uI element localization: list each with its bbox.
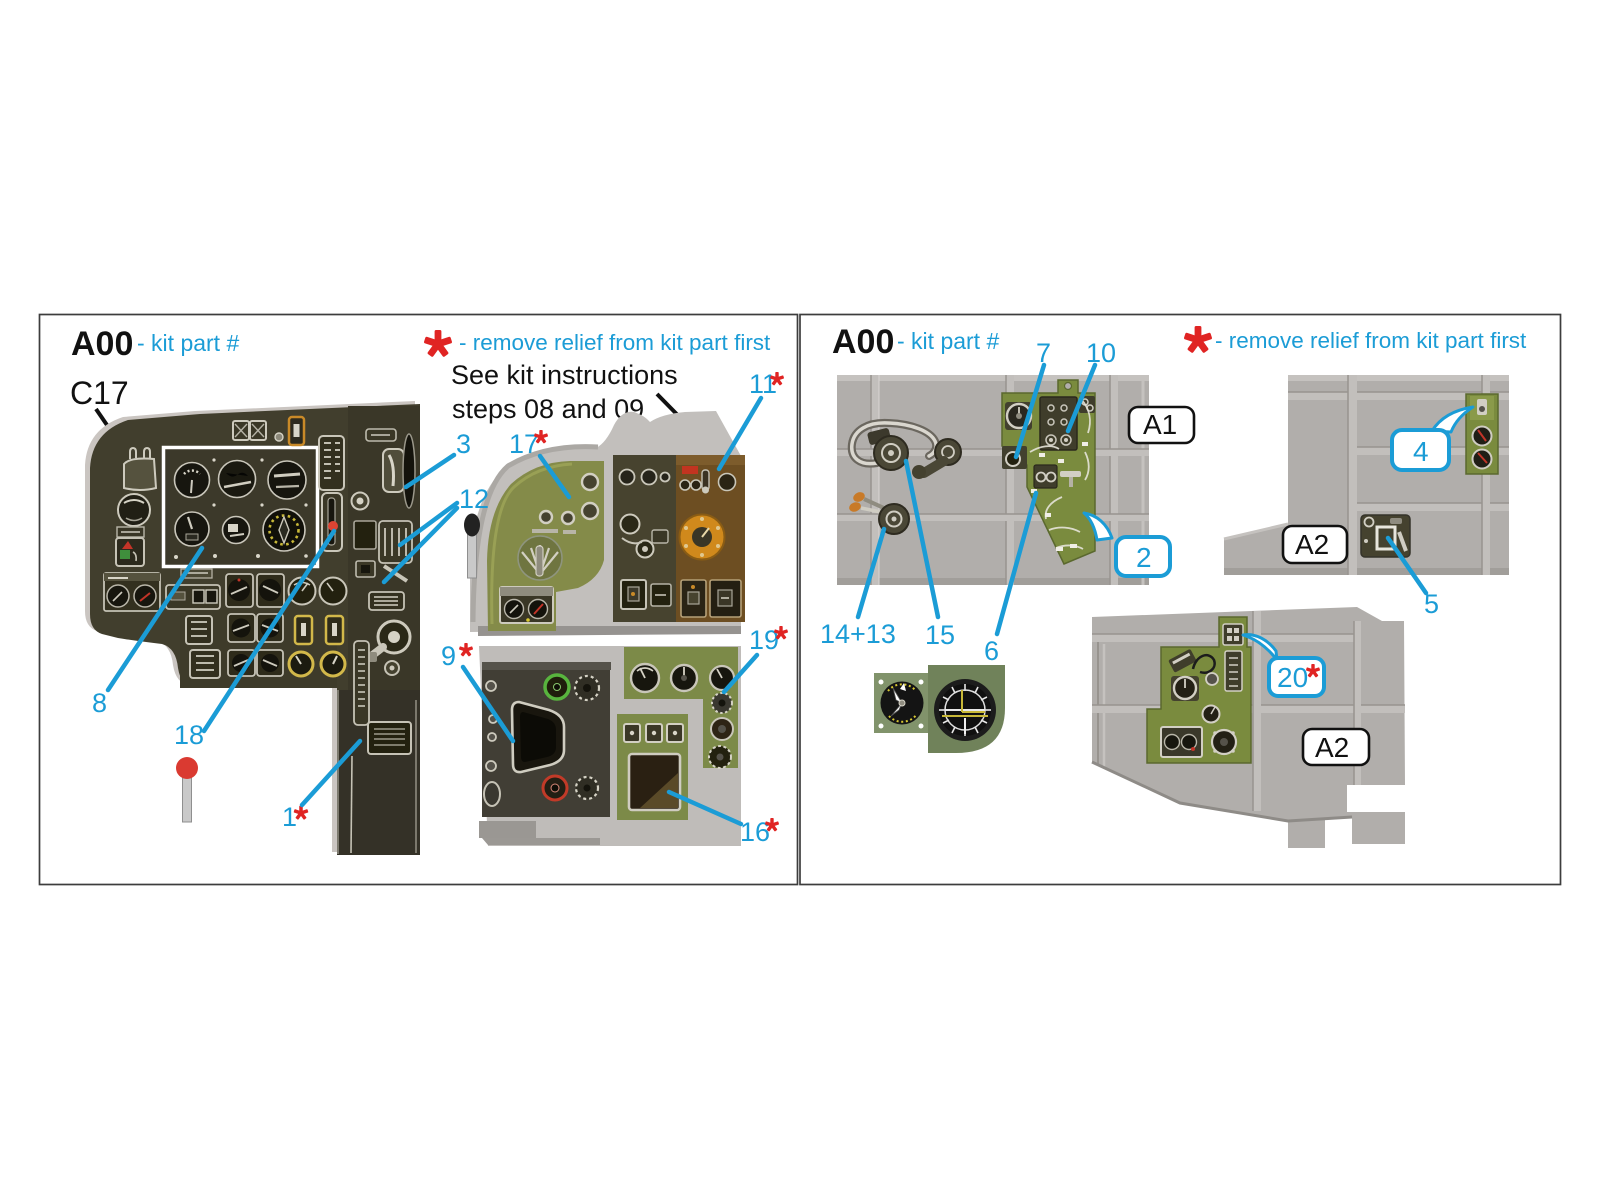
svg-text:14+13: 14+13 [820, 619, 896, 649]
svg-text:6: 6 [984, 636, 999, 666]
svg-text:A2: A2 [1315, 732, 1349, 763]
svg-text:A00: A00 [832, 323, 894, 361]
svg-text:- remove relief from kit part: - remove relief from kit part first [459, 330, 771, 355]
svg-text:steps 08 and 09: steps 08 and 09 [452, 394, 644, 424]
svg-text:8: 8 [92, 688, 107, 718]
svg-text:4: 4 [1413, 436, 1429, 467]
svg-text:A00: A00 [71, 325, 133, 363]
svg-text:12: 12 [459, 484, 489, 514]
svg-text:18: 18 [174, 720, 204, 750]
svg-text:See kit instructions: See kit instructions [451, 360, 678, 390]
svg-text:20: 20 [1277, 662, 1308, 693]
svg-text:3: 3 [456, 429, 471, 459]
svg-text:C17: C17 [70, 375, 129, 411]
svg-text:17: 17 [509, 429, 539, 459]
svg-text:15: 15 [925, 620, 955, 650]
svg-text:A2: A2 [1295, 529, 1329, 560]
svg-text:19: 19 [749, 625, 779, 655]
svg-text:A1: A1 [1143, 409, 1177, 440]
svg-text:10: 10 [1086, 338, 1116, 368]
svg-text:- kit part #: - kit part # [897, 328, 999, 354]
svg-text:2: 2 [1136, 542, 1152, 573]
svg-text:1: 1 [282, 802, 297, 832]
svg-text:9: 9 [441, 641, 456, 671]
svg-text:- remove relief from kit part: - remove relief from kit part first [1215, 328, 1527, 353]
svg-text:16: 16 [740, 817, 770, 847]
svg-text:- kit part #: - kit part # [137, 330, 239, 356]
